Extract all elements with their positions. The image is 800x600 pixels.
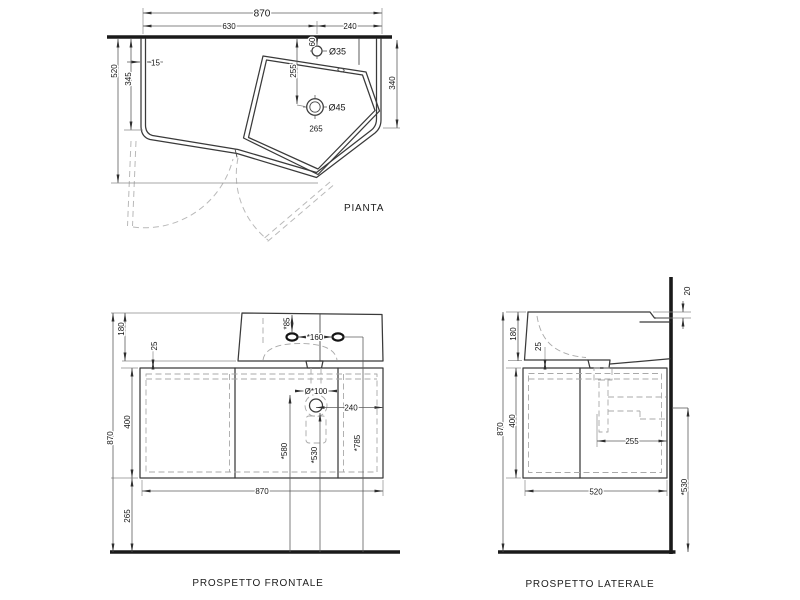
dim-front-ref-580: *580: [280, 442, 289, 459]
dim-plan-drain-offset: 265: [309, 125, 323, 134]
technical-drawing-sheet: 870 630 240 520 345 15 Ø35 60 255 Ø45 26…: [0, 0, 800, 600]
side-view: 20 180 25 870 400 255 520 *530 PROSPETTO…: [496, 277, 692, 590]
dim-plan-drain-dia: Ø45: [329, 103, 346, 113]
dim-side-depth: 520: [589, 488, 603, 497]
dim-front-top-gap: 25: [150, 341, 159, 350]
dim-side-top-gap: 25: [534, 342, 543, 351]
plan-view-title: PIANTA: [344, 203, 384, 214]
side-plumbing: [594, 368, 666, 432]
side-dimensions: [503, 301, 691, 552]
dim-plan-left-section: 630: [222, 22, 236, 31]
dim-front-overall-width: 870: [255, 487, 269, 496]
plan-faucet-hole: [310, 46, 327, 59]
front-cabinet: [140, 368, 383, 478]
dim-plan-right-depth: 340: [388, 76, 397, 90]
front-drain-fitting: [306, 361, 323, 368]
plan-door-swings: [128, 141, 334, 242]
dim-side-total-height: 870: [496, 422, 505, 436]
dim-front-siphon-hole-dia: Ø*100: [305, 387, 328, 396]
plan-bowl-outline: [244, 39, 380, 175]
front-second-hole: [333, 333, 344, 340]
dim-front-faucet-depth: *85: [283, 317, 292, 330]
plan-drain-hole: [303, 95, 327, 119]
dim-plan-left-depth: 345: [124, 72, 133, 86]
dim-plan-faucet-from-wall: 60: [308, 37, 317, 46]
front-view-title: PROSPETTO FRONTALE: [192, 578, 323, 589]
side-view-title: PROSPETTO LATERALE: [525, 579, 654, 590]
drawing-canvas: 870 630 240 520 345 15 Ø35 60 255 Ø45 26…: [0, 0, 800, 600]
dim-plan-total-depth: 520: [110, 64, 119, 78]
side-drain-fitting: [588, 360, 610, 368]
front-faucet-hole: [287, 333, 298, 340]
dim-front-basin-height: 180: [117, 322, 126, 336]
dim-front-ref-785: *785: [353, 434, 362, 451]
dim-plan-right-section: 240: [343, 22, 357, 31]
side-basin: [525, 312, 671, 368]
side-cabinet: [523, 368, 667, 478]
dim-plan-panel-thickness: 15: [151, 59, 160, 68]
dim-front-ref-530: *530: [310, 446, 319, 463]
dim-plan-drain-from-wall: 255: [289, 64, 298, 78]
dim-side-drain-to-wall: 255: [625, 437, 639, 446]
plan-view: 870 630 240 520 345 15 Ø35 60 255 Ø45 26…: [107, 8, 400, 242]
dim-front-holes-spacing: *160: [307, 333, 324, 342]
dim-front-floor-clearance: 265: [123, 509, 132, 523]
front-view: 180 25 870 400 265 870 *85 *160 Ø*100 24…: [106, 313, 400, 589]
dim-side-wall-step: 20: [683, 286, 692, 295]
dim-front-cabinet-height: 400: [123, 415, 132, 429]
dim-side-ref-530: *530: [680, 478, 689, 495]
dim-side-cabinet-height: 400: [508, 414, 517, 428]
dim-plan-overall-width: 870: [254, 9, 271, 20]
plan-dimensions: [111, 8, 400, 183]
dim-front-total-height: 870: [106, 431, 115, 445]
dim-front-drain-to-edge: 240: [344, 404, 358, 413]
dim-side-basin-height: 180: [509, 327, 518, 341]
dim-plan-faucet-hole-dia: Ø35: [329, 47, 346, 57]
